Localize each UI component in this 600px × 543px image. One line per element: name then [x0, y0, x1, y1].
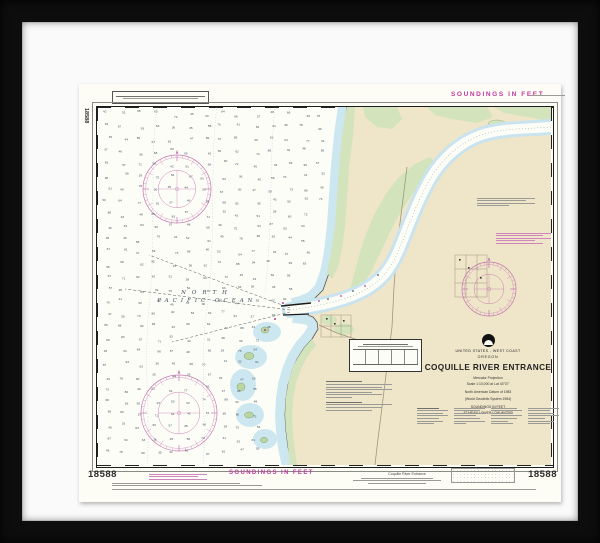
depth-sounding: 38 — [222, 336, 226, 340]
depth-sounding: 47 — [108, 312, 112, 316]
depth-sounding: 90 — [154, 188, 158, 192]
depth-sounding: 50 — [189, 264, 193, 268]
depth-sounding: 53 — [270, 136, 274, 140]
depth-sounding: 53 — [152, 387, 156, 391]
depth-sounding: 57 — [170, 349, 174, 353]
depth-sounding: 90 — [136, 377, 140, 381]
depth-sounding: 96 — [287, 274, 291, 278]
depth-sounding: 45 — [189, 126, 193, 130]
depth-sounding: 69 — [108, 410, 112, 414]
depth-sounding: 74 — [218, 260, 222, 264]
depth-sounding: 74 — [256, 152, 260, 156]
depth-sounding: 87 — [108, 437, 112, 441]
chart-notes-left — [326, 379, 392, 412]
depth-sounding: 35 — [109, 135, 113, 139]
depth-sounding: 91 — [206, 385, 210, 389]
depth-sounding: 41 — [237, 123, 241, 127]
depth-sounding: 92 — [171, 412, 175, 416]
depth-sounding: 59 — [206, 136, 210, 140]
depth-sounding: 42 — [103, 110, 107, 114]
depth-sounding: 64 — [119, 199, 123, 203]
noaa-logo — [482, 334, 495, 347]
depth-sounding: 68 — [106, 398, 110, 402]
depth-sounding: 72 — [304, 213, 308, 217]
depth-sounding: 96 — [153, 423, 157, 427]
depth-sounding: 86 — [125, 390, 129, 394]
depth-sounding: 77 — [306, 139, 310, 143]
depth-sounding: 33 — [122, 422, 126, 426]
depth-sounding: 63 — [142, 438, 146, 442]
depth-sounding: 90 — [142, 451, 146, 455]
depth-sounding: 73 — [106, 388, 110, 392]
chart-paper: SOUNDINGS IN FEET 18588 — [79, 84, 561, 502]
depth-sounding: 48 — [140, 213, 144, 217]
depth-sounding: 57 — [257, 115, 261, 119]
depth-sounding: 84 — [289, 161, 293, 165]
title-country: UNITED STATES - WEST COAST — [409, 349, 567, 353]
depth-sounding: 95 — [151, 260, 155, 264]
soundings-in-feet-bottom-label: SOUNDINGS IN FEET — [229, 470, 314, 476]
depth-sounding: 49 — [220, 235, 224, 239]
depth-sounding: 33 — [274, 163, 278, 167]
magenta-note-block — [496, 231, 551, 246]
depth-sounding: 45 — [108, 226, 112, 230]
depth-sounding: 45 — [170, 437, 174, 441]
depth-sounding: 36 — [106, 236, 110, 240]
depth-sounding: 52 — [256, 125, 260, 129]
depth-sounding: 48 — [302, 147, 306, 151]
depth-sounding: 36 — [156, 362, 160, 366]
depth-sounding: 45 — [124, 236, 128, 240]
depth-sounding: 88 — [236, 262, 240, 266]
depth-sounding: 48 — [254, 400, 258, 404]
chart-title: COQUILLE RIVER ENTRANCE — [409, 363, 567, 372]
depth-sounding: 75 — [156, 176, 160, 180]
depth-sounding: 90 — [318, 127, 322, 131]
ocean-name-line2: PACIFIC OCEAN — [127, 298, 287, 304]
depth-sounding: 93 — [124, 438, 128, 442]
depth-sounding: 72 — [174, 115, 178, 119]
depth-sounding: 59 — [252, 377, 256, 381]
depth-sounding: 60 — [288, 215, 292, 219]
depth-sounding: 58 — [208, 124, 212, 128]
depth-sounding: 52 — [237, 440, 241, 444]
depth-sounding: 42 — [188, 339, 192, 343]
depth-sounding: 43 — [157, 401, 161, 405]
depth-sounding: 62 — [204, 264, 208, 268]
depth-sounding: 34 — [121, 215, 125, 219]
depth-sounding: 59 — [152, 249, 156, 253]
depth-sounding: 67 — [206, 452, 210, 456]
depth-sounding: 70 — [218, 123, 222, 127]
depth-sounding: 55 — [137, 136, 141, 140]
depth-sounding: 48 — [187, 350, 191, 354]
depth-sounding: 95 — [257, 202, 261, 206]
depth-sounding: 57 — [138, 413, 142, 417]
depth-sounding: 70 — [157, 235, 161, 239]
depth-sounding: 62 — [305, 197, 309, 201]
depth-sounding: 74 — [225, 326, 229, 330]
depth-sounding: 35 — [158, 451, 162, 455]
depth-sounding: 68 — [154, 151, 158, 155]
depth-sounding: 68 — [223, 201, 227, 205]
depth-sounding: 56 — [106, 265, 110, 269]
depth-sounding: 71 — [122, 277, 126, 281]
depth-sounding: 95 — [152, 322, 156, 326]
depth-sounding: 41 — [174, 235, 178, 239]
depth-sounding: 34 — [252, 261, 256, 265]
top-right-tiny-note — [531, 93, 565, 97]
depth-sounding: 84 — [222, 110, 226, 114]
depth-sounding: 59 — [121, 315, 125, 319]
depth-sounding: 72 — [235, 162, 239, 166]
depth-sounding: 41 — [304, 173, 308, 177]
depth-sounding: 56 — [139, 153, 143, 157]
depth-sounding: 38 — [208, 163, 212, 167]
depth-sounding: 95 — [184, 152, 188, 156]
chart-number-bottom-right: 18588 — [528, 469, 557, 480]
depth-sounding: 43 — [208, 152, 212, 156]
depth-sounding: 77 — [138, 201, 142, 205]
depth-sounding: 39 — [219, 223, 223, 227]
depth-sounding: 64 — [169, 389, 173, 393]
depth-sounding: 51 — [122, 111, 126, 115]
framed-chart-photo: SOUNDINGS IN FEET 18588 — [0, 0, 600, 543]
depth-sounding: 51 — [206, 411, 210, 415]
depth-sounding: 64 — [285, 138, 289, 142]
depth-sounding: 49 — [106, 449, 110, 453]
depth-sounding: 96 — [155, 225, 159, 229]
depth-sounding: 83 — [105, 161, 109, 165]
depth-sounding: 50 — [171, 400, 175, 404]
depth-sounding: 61 — [273, 124, 277, 128]
depth-sounding: 46 — [307, 251, 311, 255]
depth-sounding: 36 — [239, 175, 243, 179]
depth-sounding: 44 — [169, 450, 173, 454]
depth-sounding: 37 — [285, 252, 289, 256]
depth-sounding: 35 — [153, 373, 157, 377]
depth-sounding: 61 — [109, 187, 113, 191]
depth-sounding: 88 — [225, 398, 229, 402]
bottom-caption: Coquille River Entrance — [365, 472, 449, 476]
depth-sounding: 88 — [268, 149, 272, 153]
depth-sounding: 91 — [321, 139, 325, 143]
publisher-note — [345, 476, 449, 485]
depth-sounding: 92 — [136, 275, 140, 279]
depth-sounding: 58 — [190, 362, 194, 366]
depth-sounding: 48 — [105, 176, 109, 180]
ocean-name-label: NORTH PACIFIC OCEAN — [127, 290, 287, 304]
depth-sounding: 52 — [238, 360, 242, 364]
depth-sounding: 63 — [223, 177, 227, 181]
depth-sounding: 69 — [289, 261, 293, 265]
depth-sounding: 82 — [171, 147, 175, 151]
depth-sounding: 75 — [238, 349, 242, 353]
depth-sounding: 44 — [185, 186, 189, 190]
depth-sounding: 82 — [125, 402, 129, 406]
depth-sounding: 63 — [156, 124, 160, 128]
depth-sounding: 38 — [223, 412, 227, 416]
depth-sounding: 87 — [103, 363, 107, 367]
depth-sounding: 81 — [222, 450, 226, 454]
depth-sounding: 82 — [235, 202, 239, 206]
title-scale: Scale 1:10,000 at Lat 43°07' — [409, 382, 567, 386]
depth-sounding: 82 — [140, 324, 144, 328]
depth-sounding: 52 — [322, 172, 326, 176]
depth-sounding: 81 — [239, 188, 243, 192]
depth-sounding: 71 — [207, 215, 211, 219]
depth-sounding: 72 — [253, 415, 257, 419]
depth-sounding: 86 — [187, 250, 191, 254]
depth-sounding: 77 — [184, 389, 188, 393]
depth-sounding: 45 — [104, 349, 108, 353]
depth-sounding: 55 — [187, 373, 191, 377]
depth-sounding: 37 — [251, 315, 255, 319]
depth-sounding: 45 — [254, 165, 258, 169]
depth-sounding: 72 — [225, 275, 229, 279]
depth-sounding: 38 — [137, 109, 141, 113]
depth-sounding: 57 — [108, 274, 112, 278]
depth-sounding: 77 — [222, 310, 226, 314]
depth-sounding: 54 — [105, 122, 109, 126]
depth-sounding: 60 — [224, 159, 228, 163]
depth-sounding: 53 — [191, 311, 195, 315]
depth-sounding: 84 — [141, 223, 145, 227]
depth-sounding: 34 — [287, 148, 291, 152]
depth-sounding: 55 — [301, 239, 305, 243]
depth-sounding: 67 — [107, 247, 111, 251]
depth-sounding: 93 — [284, 227, 288, 231]
depth-sounding: 51 — [169, 275, 173, 279]
depth-sounding: 51 — [207, 338, 211, 342]
depth-sounding: 70 — [106, 301, 110, 305]
depth-sounding: 57 — [169, 424, 173, 428]
depth-sounding: 87 — [270, 222, 274, 226]
depth-sounding: 61 — [256, 360, 260, 364]
depth-sounding: 60 — [239, 339, 243, 343]
depth-sounding: 57 — [122, 163, 126, 167]
depth-sounding: 46 — [272, 313, 276, 317]
depth-sounding: 43 — [273, 198, 277, 202]
depth-sounding: 49 — [121, 188, 125, 192]
depth-sounding: 48 — [119, 288, 123, 292]
bottom-legal-line — [112, 487, 536, 491]
depth-sounding: 93 — [141, 127, 145, 131]
depth-sounding: 55 — [185, 449, 189, 453]
depth-sounding: 81 — [219, 376, 223, 380]
depth-sounding: 45 — [191, 112, 195, 116]
depth-sounding: 96 — [304, 163, 308, 167]
depth-sounding: 37 — [104, 148, 108, 152]
depth-sounding: 78 — [139, 184, 143, 188]
depth-sounding: 68 — [121, 260, 125, 264]
depth-sounding: 66 — [208, 349, 212, 353]
depth-sounding: 50 — [287, 200, 291, 204]
depth-sounding: 45 — [272, 285, 276, 289]
depth-sounding: 58 — [271, 176, 275, 180]
ocean-name-line1: NORTH — [127, 290, 287, 296]
depth-sounding: 40 — [171, 310, 175, 314]
depth-sounding: 71 — [139, 163, 143, 167]
depth-sounding: 45 — [109, 426, 113, 430]
depth-sounding: 82 — [140, 263, 144, 267]
depth-sounding: 42 — [152, 275, 156, 279]
depth-sounding: 59 — [268, 190, 272, 194]
depth-sounding: 81 — [124, 248, 128, 252]
depth-sounding: 86 — [152, 312, 156, 316]
depth-sounding: 54 — [171, 173, 175, 177]
depth-sounding: 48 — [267, 259, 271, 263]
depth-sounding: 40 — [206, 248, 210, 252]
depth-sounding: 48 — [187, 223, 191, 227]
depth-sounding: 71 — [158, 340, 162, 344]
depth-sounding: 63 — [140, 365, 144, 369]
depth-sounding: 78 — [299, 123, 303, 127]
depth-sounding: 41 — [224, 359, 228, 363]
depth-sounding: 61 — [252, 438, 256, 442]
depth-sounding: 57 — [316, 161, 320, 165]
bottom-magenta-note — [149, 472, 207, 481]
depth-sounding: 70 — [202, 436, 206, 440]
depth-sounding: 39 — [307, 114, 311, 118]
depth-sounding: 75 — [234, 227, 238, 231]
depth-sounding: 37 — [170, 201, 174, 205]
depth-sounding: 88 — [240, 326, 244, 330]
depth-sounding: 35 — [272, 235, 276, 239]
depth-sounding: 50 — [186, 322, 190, 326]
depth-sounding: 37 — [222, 389, 226, 393]
depth-sounding: 83 — [303, 262, 307, 266]
depth-sounding: 33 — [124, 224, 128, 228]
depth-sounding: 68 — [118, 324, 122, 328]
depth-sounding: 91 — [273, 250, 277, 254]
depth-sounding: 60 — [154, 110, 158, 114]
depth-sounding: 67 — [208, 373, 212, 377]
depth-sounding: 57 — [169, 223, 173, 227]
depth-sounding: 62 — [236, 150, 240, 154]
depth-sounding: 40 — [138, 387, 142, 391]
depth-sounding: 91 — [156, 202, 160, 206]
depth-sounding: 46 — [237, 389, 241, 393]
depth-sounding: 45 — [172, 362, 176, 366]
depth-sounding: 59 — [256, 447, 260, 451]
depth-sounding: 42 — [171, 165, 175, 169]
depth-sounding: 62 — [207, 322, 211, 326]
depth-sounding: 51 — [257, 214, 261, 218]
depth-sounding: 84 — [271, 273, 275, 277]
depth-sounding: 48 — [267, 325, 271, 329]
depth-sounding: 34 — [252, 325, 256, 329]
depth-sounding: 33 — [205, 114, 209, 118]
depth-sounding: 60 — [236, 413, 240, 417]
depth-sounding: 44 — [173, 375, 177, 379]
depth-sounding: 51 — [186, 165, 190, 169]
depth-sounding: 64 — [208, 311, 212, 315]
depth-sounding: 78 — [240, 237, 244, 241]
depth-sounding: 86 — [304, 189, 308, 193]
depth-sounding: 41 — [223, 436, 227, 440]
depth-sounding: 64 — [239, 253, 243, 257]
depth-sounding: 74 — [202, 398, 206, 402]
depth-sounding: 81 — [168, 140, 172, 144]
depth-sounding: 41 — [119, 297, 123, 301]
depth-sounding: 40 — [255, 138, 259, 142]
depth-sounding: 57 — [109, 286, 113, 290]
depth-sounding: 57 — [185, 210, 189, 214]
depth-sounding: 67 — [220, 190, 224, 194]
chart-number-bottom-left: 18588 — [88, 469, 117, 480]
depth-sounding: 36 — [172, 126, 176, 130]
depth-sounding: 87 — [190, 175, 194, 179]
depth-sounding: 87 — [118, 125, 122, 129]
depth-sounding: 86 — [234, 136, 238, 140]
depth-sounding: 33 — [253, 277, 257, 281]
title-datum: North American Datum of 1983 — [409, 390, 567, 394]
depth-sounding: 84 — [136, 426, 140, 430]
depth-sounding: 44 — [125, 138, 129, 142]
depth-sounding: 36 — [153, 438, 157, 442]
depth-sounding: 54 — [257, 425, 261, 429]
depth-sounding: 47 — [253, 188, 257, 192]
depth-sounding: 46 — [187, 199, 191, 203]
depth-sounding: 45 — [240, 273, 244, 277]
depth-sounding: 47 — [241, 378, 245, 382]
depth-sounding: 40 — [320, 186, 324, 190]
depth-sounding: 52 — [186, 236, 190, 240]
title-projection: Mercator Projection — [409, 376, 567, 380]
depth-sounding: 88 — [108, 211, 112, 215]
depth-sounding: 84 — [137, 348, 141, 352]
depth-sounding: 54 — [254, 348, 258, 352]
depth-sounding: 73 — [290, 188, 294, 192]
depth-sounding: 96 — [234, 115, 238, 119]
depth-sounding: 47 — [190, 137, 194, 141]
depth-sounding: 43 — [173, 264, 177, 268]
depth-sounding: 35 — [168, 185, 172, 189]
depth-sounding: 70 — [202, 363, 206, 367]
depth-sounding: 92 — [170, 335, 174, 339]
depth-sounding: 83 — [172, 215, 176, 219]
depth-sounding: 47 — [241, 448, 245, 452]
depth-sounding: 46 — [119, 150, 123, 154]
depth-sounding: 66 — [207, 226, 211, 230]
depth-sounding: 56 — [105, 323, 109, 327]
depth-sounding: 63 — [238, 285, 242, 289]
depth-sounding: 69 — [106, 338, 110, 342]
depth-sounding: 57 — [139, 338, 143, 342]
depth-sounding: 49 — [284, 123, 288, 127]
depth-sounding: 60 — [204, 276, 208, 280]
depth-sounding: 69 — [152, 212, 156, 216]
depth-sounding: 38 — [186, 278, 190, 282]
depth-sounding: 50 — [218, 149, 222, 153]
depth-sounding: 39 — [139, 174, 143, 178]
depth-sounding: 91 — [234, 314, 238, 318]
depth-sounding: 34 — [235, 400, 239, 404]
depth-sounding: 45 — [258, 178, 262, 182]
depth-sounding: 56 — [253, 387, 257, 391]
depth-sounding: 78 — [119, 450, 123, 454]
depth-sounding: 39 — [221, 349, 225, 353]
depth-sounding: 42 — [235, 214, 239, 218]
depth-sounding: 95 — [137, 402, 141, 406]
depth-sounding: 71 — [155, 414, 159, 418]
depth-sounding: 53 — [217, 250, 221, 254]
agency-dot-seal — [451, 468, 515, 483]
chart-number-left-vertical: 18588 — [83, 108, 89, 123]
depth-sounding: 54 — [258, 224, 262, 228]
depth-sounding: 73 — [137, 314, 141, 318]
